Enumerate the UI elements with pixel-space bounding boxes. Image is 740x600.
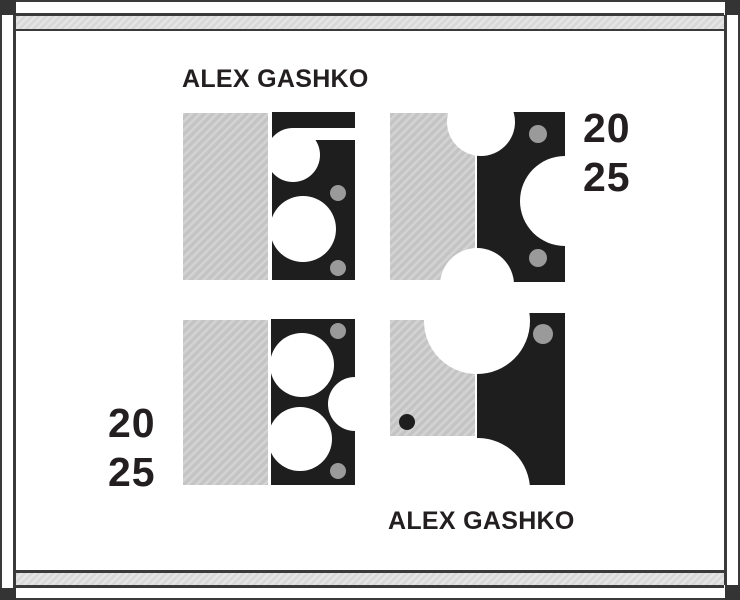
figure-bottom-right (390, 313, 565, 485)
black-plate (477, 112, 565, 282)
poster: ALEX GASHKO ALEX GASHKO 20 25 20 25 (0, 0, 740, 600)
figure-top-right (390, 110, 565, 282)
figure-top-left (183, 112, 355, 280)
black-plate (271, 319, 355, 485)
year-top-right-line2: 25 (583, 153, 631, 202)
hatched-gray-block (390, 113, 475, 280)
frame-hatched-band-bottom (16, 570, 724, 588)
frame-corner-square-top-right (725, 0, 740, 15)
rivet-dot (330, 323, 346, 339)
rivet-dot (330, 260, 346, 276)
frame-inner-left-line (13, 15, 16, 588)
year-bottom-left-line2: 25 (108, 448, 156, 497)
rivet-dot (529, 249, 547, 267)
black-dot (399, 414, 415, 430)
artist-name-top: ALEX GASHKO (182, 67, 369, 92)
year-bottom-left: 20 25 (108, 399, 156, 497)
frame-outer-left-line (0, 15, 2, 588)
frame-hatched-band-top (16, 13, 724, 31)
rivet-dot (533, 324, 553, 344)
frame-outer-top-line (16, 0, 725, 2)
hatched-gray-block (183, 113, 268, 280)
frame-corner-square-bottom-left (0, 588, 16, 600)
year-top-right: 20 25 (583, 104, 631, 202)
rivet-dot (330, 463, 346, 479)
black-plate (477, 313, 565, 485)
figure-bottom-left (183, 318, 355, 485)
rivet-dot (330, 185, 346, 201)
artist-name-bottom: ALEX GASHKO (388, 509, 575, 534)
hatched-gray-block (183, 320, 268, 485)
rivet-dot (529, 125, 547, 143)
year-bottom-left-line1: 20 (108, 399, 156, 448)
frame-inner-right-line (724, 15, 727, 585)
year-top-right-line1: 20 (583, 104, 631, 153)
frame-corner-square-top-left (0, 0, 16, 15)
frame-corner-square-bottom-right (725, 585, 740, 600)
